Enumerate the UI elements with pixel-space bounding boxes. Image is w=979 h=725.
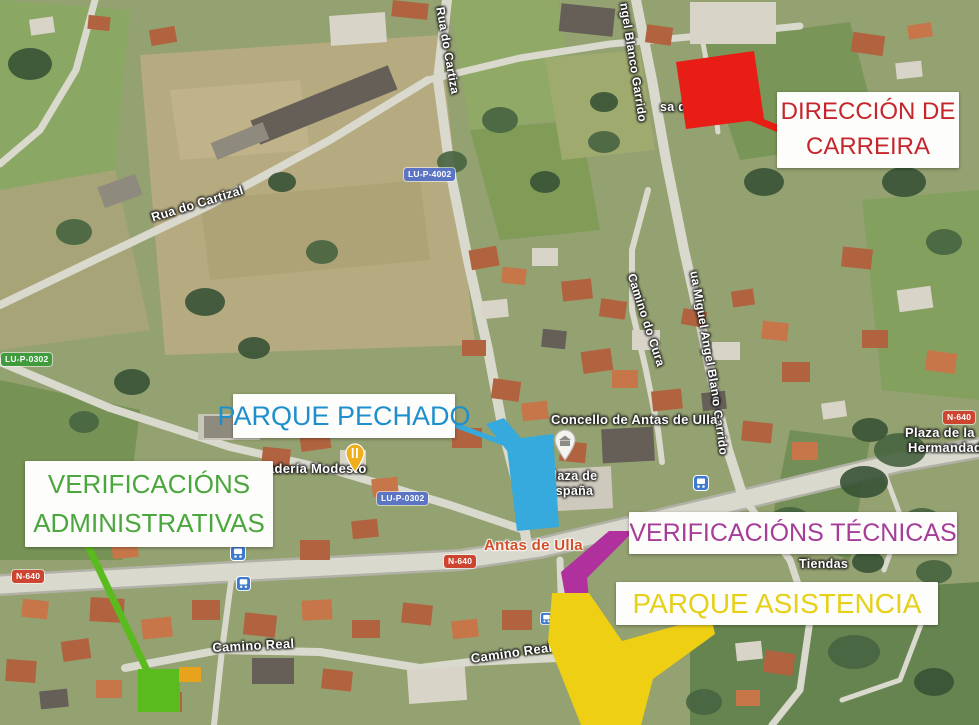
direccion-zone-marker [676, 51, 764, 129]
verificacions-admin-label-line1: VERIFICACIÓNS [48, 465, 250, 504]
parque-pechado-label: PARQUE PECHADO [217, 401, 470, 432]
verificacions-admin-connector-line [79, 527, 151, 679]
verificacions-tecnicas-label-box: VERIFICACIÓNS TÉCNICAS [629, 512, 957, 554]
verificacions-tecnicas-label: VERIFICACIÓNS TÉCNICAS [629, 519, 956, 548]
parque-pechado-zone-marker [506, 434, 559, 531]
parque-pechado-label-box: PARQUE PECHADO [233, 394, 455, 438]
satellite-map: Rua do Cartiza ngel Blanco Garrido Rua d… [0, 0, 979, 725]
verificacions-administrativas-label-box: VERIFICACIÓNS ADMINISTRATIVAS [25, 461, 273, 547]
verificacions-admin-zone-marker [138, 669, 180, 712]
verificacions-admin-orange-marker [179, 667, 201, 682]
direccion-label-line2: CARREIRA [806, 130, 930, 165]
parque-asistencia-label-box: PARQUE ASISTENCIA [616, 582, 938, 625]
parque-asistencia-label: PARQUE ASISTENCIA [633, 588, 922, 620]
verificacions-admin-label-line2: ADMINISTRATIVAS [33, 504, 265, 543]
direccion-de-carreira-label-box: DIRECCIÓN DE CARREIRA [777, 92, 959, 168]
direccion-label-line1: DIRECCIÓN DE [781, 95, 956, 130]
